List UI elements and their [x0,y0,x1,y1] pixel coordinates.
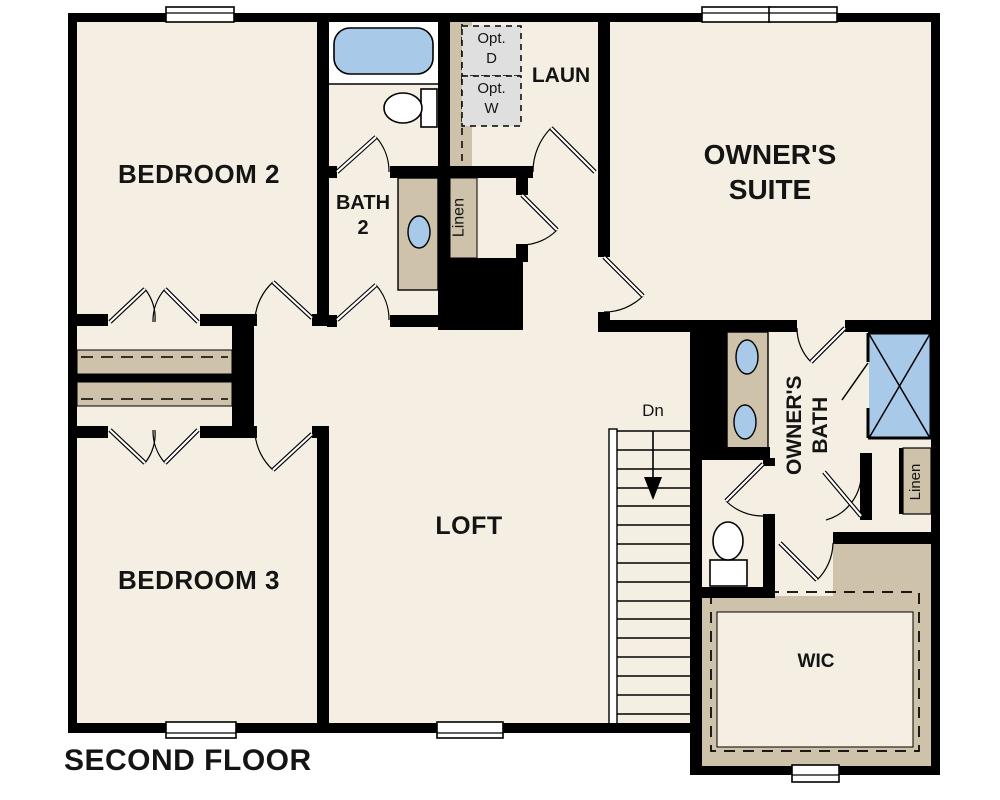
window-owners-suite-1 [702,7,770,22]
bathtub-icon [329,22,438,84]
bedroom3-closet-shelf [77,382,232,406]
stair-railing [609,429,617,724]
bath2-vanity [398,178,438,290]
opt-dryer-box [462,26,521,76]
floor-plan-drawing [0,0,1000,800]
chase-wall [438,258,523,330]
opt-washer-box [462,76,521,126]
linen-closet-hall [450,178,477,258]
owners-bath-vanity [727,332,768,448]
window-owners-suite-2 [769,7,837,22]
window-bedroom2 [166,7,234,22]
window-loft [437,722,503,738]
floor-plan: BEDROOM 2 BATH 2 LAUN OWNER'S SUITE LOFT… [0,0,1000,800]
linen-closet-bath [903,448,931,514]
bedroom2-closet-shelf [77,350,232,374]
sink-icon-owners-2 [734,405,756,439]
sink-icon-bath2 [408,216,430,248]
window-bedroom3 [166,722,236,738]
window-wic [792,765,839,782]
sink-icon-owners-1 [736,340,758,374]
